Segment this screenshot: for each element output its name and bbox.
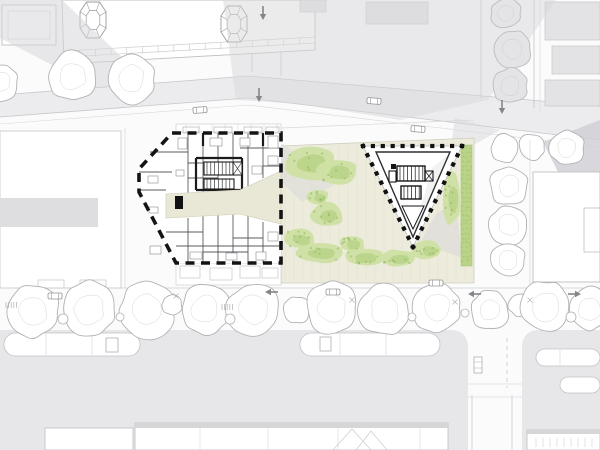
hedge-dot <box>465 157 467 159</box>
blob-dot <box>431 247 433 249</box>
hedge-dot <box>461 178 463 180</box>
car <box>193 107 207 114</box>
triangle-stair-block <box>397 166 425 181</box>
car <box>367 98 381 105</box>
furniture <box>190 252 202 259</box>
blob-dot <box>384 261 386 263</box>
entrance-block <box>175 196 183 209</box>
hedge-dot <box>466 201 468 203</box>
car <box>326 289 340 295</box>
blob-dot <box>328 213 330 215</box>
hedge-dot <box>466 165 468 167</box>
hedge-dot <box>470 250 472 252</box>
hedge-dot <box>466 192 468 194</box>
blob-dot <box>450 213 452 215</box>
hedge-dot <box>462 187 464 189</box>
furniture <box>210 138 222 146</box>
hedge-dot <box>465 183 467 185</box>
hedge-dot <box>462 214 464 216</box>
hedge-dot <box>470 255 472 257</box>
blob-dot <box>388 260 390 262</box>
blob-dot <box>330 176 332 178</box>
site-plan-canvas <box>0 0 600 450</box>
hedge-dot <box>463 201 465 203</box>
hedge-dot <box>463 182 465 184</box>
furniture <box>256 252 266 260</box>
shrub <box>461 309 469 317</box>
hedge-dot <box>462 174 464 176</box>
hedge-dot <box>469 201 471 203</box>
blob-dot <box>320 215 322 217</box>
hedge-dot <box>470 175 472 177</box>
hedge-dot <box>466 152 468 154</box>
blob-dot <box>445 194 447 196</box>
tram-platform <box>4 333 140 356</box>
perimeter-dot <box>440 144 444 148</box>
annex-room <box>180 266 200 278</box>
context-block-ne <box>545 80 600 106</box>
blob-dot <box>299 255 301 257</box>
hedge-dot <box>466 259 468 261</box>
hedge-dot <box>462 192 464 194</box>
hedge-dot <box>462 238 464 240</box>
blob-dot <box>423 248 425 250</box>
tram-platform <box>300 333 440 356</box>
furniture <box>240 138 250 146</box>
plan-upper-strip <box>176 124 281 132</box>
car-body <box>326 289 340 295</box>
hedge-dot <box>469 245 471 247</box>
hedge-dot <box>463 156 465 158</box>
blob-dot <box>289 154 291 156</box>
hedge-dot <box>468 215 470 217</box>
hedge-dot <box>463 197 465 199</box>
car <box>429 280 443 286</box>
blob-dot <box>451 192 453 194</box>
blob-dot <box>327 174 329 176</box>
blob-dot <box>318 248 320 250</box>
context-block-ne <box>552 46 600 74</box>
blob-dot <box>309 197 311 199</box>
blob-dot <box>316 192 318 194</box>
hedge-dot <box>465 147 467 149</box>
car <box>411 126 425 133</box>
perimeter-dot <box>371 144 375 148</box>
blob-dot <box>437 249 439 251</box>
hedge-dot <box>465 223 467 225</box>
hedge-dot <box>466 206 468 208</box>
hedge-dot <box>462 169 464 171</box>
blob-dot <box>341 163 343 165</box>
hedge-dot <box>469 259 471 261</box>
hedge-dot <box>469 197 471 199</box>
hedge-dot <box>466 169 468 171</box>
hedge-dot <box>466 174 468 176</box>
tree <box>283 297 308 323</box>
hedge-dot <box>466 215 468 217</box>
car-body <box>429 280 443 286</box>
hedge-dot <box>462 260 464 262</box>
furniture <box>268 156 278 165</box>
stop-marker <box>474 357 482 373</box>
perimeter-dot <box>420 144 424 148</box>
blob-dot <box>296 241 298 243</box>
shrub <box>408 313 416 321</box>
hedge-dot <box>465 209 467 211</box>
hedge-dot <box>466 197 468 199</box>
blob-dot <box>347 237 349 239</box>
blob-dot <box>303 232 305 234</box>
hedge-dot <box>461 247 463 249</box>
blob-dot <box>416 250 418 252</box>
hedge-dot <box>463 256 465 258</box>
furniture <box>268 232 278 241</box>
blob-dot <box>310 247 312 249</box>
hedge-dot <box>465 241 467 243</box>
blob-dot <box>335 259 337 261</box>
hedge-dot <box>470 219 472 221</box>
blob-dot <box>344 177 346 179</box>
hedge-dot <box>466 161 468 163</box>
hedge-dot <box>466 179 468 181</box>
blob-dot <box>335 169 337 171</box>
hedge-dot <box>469 184 471 186</box>
hedge-dot <box>462 161 464 163</box>
blob-dot <box>348 239 350 241</box>
tree <box>162 295 182 315</box>
context-building-east-annex <box>584 208 600 252</box>
blob-dot <box>451 209 453 211</box>
car-body <box>48 293 62 299</box>
blob-dot <box>289 245 291 247</box>
blob-dot <box>323 179 325 181</box>
blob-dot <box>341 242 343 244</box>
hedge-dot <box>465 238 467 240</box>
blob-dot <box>343 241 345 243</box>
shrub <box>116 313 124 321</box>
tree <box>64 280 115 336</box>
perimeter-dot <box>450 144 454 148</box>
hedge-dot <box>468 238 470 240</box>
site <box>139 120 474 285</box>
hedge-dot <box>465 233 467 235</box>
blob-dot <box>444 188 446 190</box>
furniture <box>252 166 262 174</box>
hedge-dot <box>461 251 463 253</box>
hedge-dot <box>469 178 471 180</box>
blob-dot <box>404 258 406 260</box>
blob-dot <box>313 211 315 213</box>
blob-dot <box>420 253 422 255</box>
south-building-left <box>45 428 133 450</box>
car <box>48 293 62 299</box>
perimeter-dot <box>430 144 434 148</box>
blob-dot <box>319 253 321 255</box>
blob-dot <box>358 262 360 264</box>
blob-dot <box>310 192 312 194</box>
hedge-dot <box>463 228 465 230</box>
blob-dot <box>287 231 289 233</box>
blob-dot <box>356 261 358 263</box>
furniture <box>149 207 158 213</box>
blob-dot <box>350 172 352 174</box>
west-context <box>0 128 125 288</box>
blob-dot <box>347 251 349 253</box>
triangle-wall-chunk <box>391 164 396 169</box>
furniture <box>268 136 278 148</box>
car-body <box>411 126 425 133</box>
annex-room <box>262 268 278 278</box>
blob-dot <box>369 261 371 263</box>
blob-dot <box>307 166 309 168</box>
tree <box>490 167 528 204</box>
furniture <box>148 176 158 183</box>
hedge-dot <box>469 242 471 244</box>
hedge-dot <box>466 220 468 222</box>
blob-dot <box>308 237 310 239</box>
blob-dot <box>408 262 410 264</box>
blob-dot <box>323 196 325 198</box>
furniture <box>176 170 184 176</box>
shrub <box>566 312 576 322</box>
blob-dot <box>320 205 322 207</box>
tram-platform <box>536 349 600 366</box>
tree <box>491 0 521 28</box>
blob-dot <box>308 157 310 159</box>
hedge-dot <box>462 233 464 235</box>
blob-dot <box>450 202 452 204</box>
blob-dot <box>306 152 308 154</box>
blob-dot <box>308 169 310 171</box>
context-block-ne <box>545 2 600 40</box>
blob-dot <box>316 247 318 249</box>
hedge-dot <box>466 247 468 249</box>
furniture <box>150 246 161 254</box>
perimeter-dot <box>391 144 395 148</box>
furniture <box>226 253 237 260</box>
hedge-dot <box>465 251 467 253</box>
hedge-dot <box>462 242 464 244</box>
blob-dot <box>314 251 316 253</box>
hedge-dot <box>469 187 471 189</box>
hedge-dot <box>461 223 463 225</box>
blob-dot <box>432 252 434 254</box>
perimeter-dot <box>401 144 405 148</box>
blob-dot <box>297 231 299 233</box>
blob-dot <box>343 238 345 240</box>
hedge-dot <box>462 152 464 154</box>
hedge-dot <box>470 228 472 230</box>
annex-room <box>240 266 260 278</box>
hedge-dot <box>470 166 472 168</box>
blob-dot <box>336 217 338 219</box>
blob-dot <box>324 222 326 224</box>
hedge-dot <box>469 152 471 154</box>
blob-dot <box>350 255 352 257</box>
car-body <box>367 98 381 105</box>
blob-dot <box>299 236 301 238</box>
hedge-dot <box>468 161 470 163</box>
hedge-dot <box>470 210 472 212</box>
blob-dot <box>321 198 323 200</box>
hedge-dot <box>469 223 471 225</box>
blob-dot <box>419 250 421 252</box>
blob-dot <box>321 152 323 154</box>
tree <box>491 133 518 162</box>
hedge-dot <box>467 256 469 258</box>
hedge-dot <box>463 165 465 167</box>
plan-lower-annex <box>180 266 278 280</box>
annex-room <box>210 268 232 280</box>
blob-dot <box>445 207 447 209</box>
blob-dot <box>365 261 367 263</box>
hedge-dot <box>468 206 470 208</box>
hedge-dot <box>462 205 464 207</box>
hedge-dot <box>465 187 467 189</box>
shrub <box>58 314 68 324</box>
hedge-dot <box>466 228 468 230</box>
car-body <box>193 107 207 114</box>
hedge-dot <box>463 220 465 222</box>
blob-dot <box>329 220 331 222</box>
shrub <box>225 314 235 324</box>
hedge-dot <box>470 147 472 149</box>
hedge-dot <box>469 155 471 157</box>
perimeter-dot <box>410 144 414 148</box>
blob-dot <box>448 185 450 187</box>
furniture <box>178 138 187 149</box>
tree <box>494 31 531 68</box>
hedge-dot <box>468 233 470 235</box>
west-building-gray-band <box>0 198 98 227</box>
hedge-dot <box>468 169 470 171</box>
hedge-dot <box>461 210 463 212</box>
south-building-mid-band <box>135 423 448 428</box>
tram-platform <box>560 377 600 393</box>
blob-dot <box>429 253 431 255</box>
south-building-right-band <box>527 430 600 434</box>
blob-dot <box>293 235 295 237</box>
site-plan <box>0 0 600 450</box>
perimeter-dot <box>381 144 385 148</box>
blob-dot <box>337 247 339 249</box>
blob-dot <box>354 238 356 240</box>
blob-dot <box>319 199 321 201</box>
blob-dot <box>392 259 394 261</box>
hedge-dot <box>470 192 472 194</box>
blob-dot <box>293 160 295 162</box>
